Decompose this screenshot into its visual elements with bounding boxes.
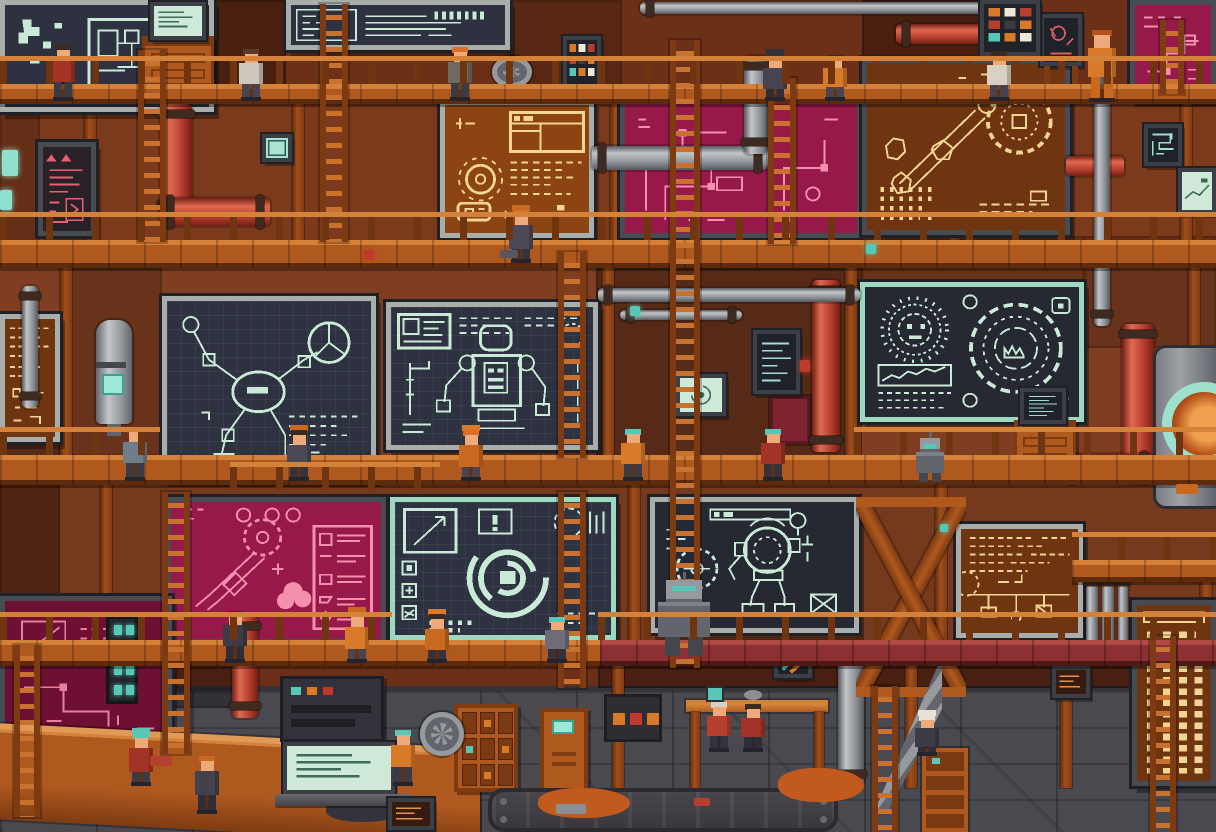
board-spider-bot-blueprint-screen xyxy=(167,301,371,475)
worker-spiral-ladder-head xyxy=(551,622,564,630)
pixel-art-workshop-scene xyxy=(0,0,1216,832)
screen-maze-right[interactable] xyxy=(1144,124,1182,166)
worker-spiral-board-head xyxy=(431,619,444,629)
worker-workbench-1[interactable] xyxy=(706,702,732,752)
pipe-gray-mid-h-flange xyxy=(846,285,854,305)
shelf-box-item xyxy=(630,713,642,725)
crate-compartments-item xyxy=(484,772,491,779)
worker-top-desk-legs xyxy=(242,84,260,98)
capsule-pod xyxy=(96,320,132,424)
screen-orange-rows xyxy=(1056,670,1086,694)
worker-workbench-2-torso xyxy=(741,718,764,737)
indicator-red-2 xyxy=(364,250,374,260)
crate-compartments-item xyxy=(502,746,509,753)
worker-floor-standing-feet xyxy=(197,810,218,814)
worker-robot-board[interactable] xyxy=(458,425,484,481)
worker-top-desk-feet xyxy=(241,97,262,101)
worker-orange-suit-feet xyxy=(1089,98,1115,102)
worker-top-center-feet xyxy=(450,97,471,101)
worker-workbench-2[interactable] xyxy=(740,704,766,752)
worker-workbench-2-head xyxy=(747,709,760,718)
screen-buttons xyxy=(984,4,1036,52)
walkway-4-left xyxy=(0,640,600,666)
shelf-rack-right[interactable] xyxy=(922,748,968,832)
worker-floor-standing[interactable] xyxy=(194,756,220,814)
worker-floor-standing-head xyxy=(201,761,214,771)
worker-red-jacket-mid-legs xyxy=(764,464,782,478)
pipe-red-mid-vertical-flange xyxy=(809,436,843,444)
worker-teal-hair-mid[interactable] xyxy=(620,429,646,481)
pipe-gray-mid-h2-flange xyxy=(728,307,736,323)
indicator-teal-3 xyxy=(940,524,948,532)
railing-walkway-2 xyxy=(0,212,1216,240)
monitor-desk-top-left[interactable] xyxy=(150,2,206,40)
shelf-rack-right-shelf xyxy=(926,790,964,795)
tiny-screen-left-2 xyxy=(0,190,12,210)
ladder-bottom-right[interactable] xyxy=(872,686,898,832)
monitor-podium[interactable] xyxy=(1020,388,1066,424)
pipe-gray-right-tall-flange xyxy=(1091,310,1113,318)
robot-assistant-mid-right-legs xyxy=(919,473,941,482)
locker-orange-vent xyxy=(552,752,576,756)
truss-cross-brace xyxy=(856,497,966,697)
crate-compartments-item xyxy=(484,720,491,727)
crate-compartments-cell xyxy=(462,738,477,760)
screen-rows xyxy=(757,334,796,390)
worker-spider-right-head xyxy=(293,435,306,445)
debris-orange-part xyxy=(1176,484,1198,494)
monitor-small-left[interactable] xyxy=(262,134,292,162)
ladder-right-edge[interactable] xyxy=(1150,636,1176,832)
board-spider-bot-blueprint[interactable] xyxy=(162,296,376,480)
console-bottom-left-light xyxy=(307,687,317,695)
worker-amber-board-feet xyxy=(511,259,532,263)
worker-white-hood-feet xyxy=(917,752,938,756)
debris-red-parts xyxy=(150,756,172,766)
pipe-gray-left-v xyxy=(22,286,38,408)
worker-workbench-1-head xyxy=(713,707,726,716)
railing-platform-high xyxy=(1072,532,1216,560)
terminal-orange-floor[interactable] xyxy=(388,798,434,830)
debris-wrench xyxy=(556,804,586,814)
railing-front-walkway-3 xyxy=(230,462,440,490)
pipe-red-mid-vertical xyxy=(812,280,840,452)
debris-stone xyxy=(500,250,518,258)
worker-spiral-ladder-torso xyxy=(545,630,568,648)
screen-rows xyxy=(1024,392,1062,420)
screen-teal-lines xyxy=(287,746,391,790)
crate-compartments-cell xyxy=(462,712,477,734)
worker-floor-teal-hair-feet xyxy=(393,782,414,786)
railing-walkway-4-left xyxy=(0,612,392,640)
pipe-red-top-right-flange xyxy=(902,21,910,47)
ladder-mid-center[interactable] xyxy=(558,252,586,458)
console-bottom-left-slot xyxy=(291,719,355,727)
shelf-box-item xyxy=(647,713,659,725)
spill-orange-right xyxy=(778,768,864,802)
screen-graph xyxy=(1182,172,1212,210)
gear-debris-floor xyxy=(420,712,464,756)
worker-top-left-feet xyxy=(53,97,74,101)
indicator-teal-1 xyxy=(630,306,640,316)
shelf-box[interactable] xyxy=(604,694,662,742)
crate-compartments-cell xyxy=(480,712,495,734)
worker-floor-teal-hair-torso xyxy=(391,745,414,767)
crate-compartments-cell xyxy=(498,764,513,786)
worker-teal-hair-mid-feet xyxy=(623,477,644,481)
worker-floor-teal-hair-legs xyxy=(394,767,412,783)
tiny-screen-left-1 xyxy=(2,150,18,176)
worker-robot-board-head xyxy=(465,435,478,445)
workbench-right-plate xyxy=(744,690,762,700)
debris-red-bits xyxy=(694,798,710,806)
worker-spiral-board-torso xyxy=(425,629,448,651)
worker-floor-standing-legs xyxy=(198,795,216,811)
console-bottom-left-slot xyxy=(291,705,371,713)
shelf-rack-right-shelf xyxy=(926,771,964,776)
light-column-cell xyxy=(126,685,134,695)
worker-console-right-feet xyxy=(989,97,1010,101)
railing-walkway-3-right xyxy=(854,427,1216,455)
worker-red-jacket-mid[interactable] xyxy=(760,429,786,481)
railing-walkway-3-left xyxy=(0,427,160,455)
diagram-spider-bot xyxy=(167,301,371,475)
light-column-cell xyxy=(114,685,122,695)
shelf-rack-right-light xyxy=(932,758,940,764)
screen-maze xyxy=(1148,128,1178,162)
pipe-gray-mid-h-flange xyxy=(604,285,612,305)
console-bottom-left-light xyxy=(291,687,301,695)
worker-crimson-orange-feet xyxy=(347,659,368,663)
crate-compartments-item xyxy=(466,746,473,753)
worker-red-jacket-mid-torso xyxy=(761,443,784,464)
worker-floor-teal-hair-head xyxy=(397,735,410,745)
crate-compartments-cell xyxy=(480,764,495,786)
worker-spiral-ladder[interactable] xyxy=(544,617,570,663)
worker-spider-left-legs xyxy=(126,463,144,478)
worker-teal-hair-mid-head xyxy=(627,434,640,443)
pipe-gray-top-v-flange xyxy=(741,138,771,146)
capsule-pod-window xyxy=(102,374,124,395)
indicator-red-1 xyxy=(800,360,810,372)
worker-spiral-ladder-feet xyxy=(547,659,568,663)
shelf-box-item xyxy=(613,713,625,725)
worker-floor-teal-hair[interactable] xyxy=(390,730,416,786)
button-panel-top[interactable] xyxy=(980,0,1040,56)
indicator-teal-2 xyxy=(866,244,876,254)
computer-right-desk[interactable] xyxy=(1178,168,1216,214)
pipe-gray-mid-h xyxy=(598,288,860,302)
worker-spiral-board[interactable] xyxy=(424,609,450,663)
crate-compartments-cell xyxy=(480,738,495,760)
console-bottom-left-light xyxy=(323,687,333,695)
ladder-tall-left[interactable] xyxy=(320,4,348,242)
console-bottom-left[interactable] xyxy=(280,676,384,742)
worker-top-orange-feet xyxy=(825,97,846,101)
workbench-right-device[interactable] xyxy=(708,688,722,700)
worker-teal-hair-mid-torso xyxy=(621,443,644,464)
worker-top-dark-feet xyxy=(765,97,786,101)
locker-orange[interactable] xyxy=(540,708,588,792)
truss-cross-brace-beam xyxy=(856,497,966,507)
robot-platform-right-eye xyxy=(672,586,695,591)
screen-blank xyxy=(266,138,288,158)
worker-laptop-desk-head xyxy=(135,738,148,748)
capsule-pod-band xyxy=(96,362,126,368)
worker-workbench-1-feet xyxy=(709,748,730,752)
walkway-1 xyxy=(0,84,1216,104)
worker-white-hood-head xyxy=(921,720,934,728)
crate-compartments[interactable] xyxy=(454,704,518,792)
pipe-gray-left-v-flange xyxy=(19,292,41,300)
pipe-red-bottom-left-flange xyxy=(229,702,261,710)
locker-orange-vent xyxy=(552,762,576,766)
light-column-cell xyxy=(114,665,122,675)
worker-spider-left-feet xyxy=(125,477,146,481)
ladder-bottom-left[interactable] xyxy=(14,645,40,817)
railing-walkway-4-right xyxy=(598,612,1216,640)
worker-white-hood[interactable] xyxy=(914,710,940,756)
crate-compartments-cell xyxy=(498,738,513,760)
worker-crimson-desk-legs xyxy=(226,646,244,660)
screen-teal-lines xyxy=(154,6,202,36)
light-column-cell xyxy=(126,665,134,675)
pipe-red-right-vertical-flange xyxy=(1119,330,1157,338)
laptop-bottom-desk[interactable] xyxy=(283,742,395,794)
pipe-gray-top-h-flange xyxy=(598,143,606,173)
cabinet-top-left-lid xyxy=(145,39,211,46)
worker-orange-suit-head xyxy=(1094,35,1110,48)
worker-floor-standing-torso xyxy=(195,771,218,794)
hatch-plate-bolt xyxy=(820,816,827,823)
worker-top-left-legs xyxy=(54,82,72,98)
worker-workbench-1-torso xyxy=(707,716,730,736)
crate-compartments-cell xyxy=(462,764,477,786)
worker-red-jacket-mid-feet xyxy=(763,477,784,481)
worker-robot-board-torso xyxy=(459,445,482,467)
worker-laptop-desk-feet xyxy=(131,782,152,786)
worker-red-jacket-mid-head xyxy=(767,434,780,443)
hatch-plate-bolt xyxy=(500,798,507,805)
pipe-gray-top-long-flange xyxy=(646,0,654,17)
crate-compartments-cell xyxy=(498,712,513,734)
worker-top-center-legs xyxy=(451,83,469,98)
worker-crimson-desk-feet xyxy=(225,659,246,663)
screen-orange-rows xyxy=(392,802,430,826)
platform-high-right xyxy=(1072,560,1216,582)
worker-robot-board-feet xyxy=(461,477,482,481)
pipe-gray-left-v-flange xyxy=(19,392,41,400)
worker-spiral-board-feet xyxy=(427,659,448,663)
railing-walkway-1 xyxy=(0,56,1216,84)
terminal-orange-small[interactable] xyxy=(1052,666,1090,698)
walkway-3 xyxy=(0,455,1216,485)
hatch-plate-bolt xyxy=(500,816,507,823)
worker-white-hood-torso xyxy=(915,728,938,746)
worker-workbench-2-feet xyxy=(743,748,764,752)
shelf-rack-right-shelf xyxy=(926,809,964,814)
panel-mint-readout-mid[interactable] xyxy=(753,330,800,394)
locker-orange-window xyxy=(552,720,574,734)
walkway-2 xyxy=(0,240,1216,268)
workbench-right-leg xyxy=(690,712,700,790)
pipe-gray-top-long xyxy=(640,2,1006,14)
worker-teal-hair-mid-legs xyxy=(624,464,642,478)
